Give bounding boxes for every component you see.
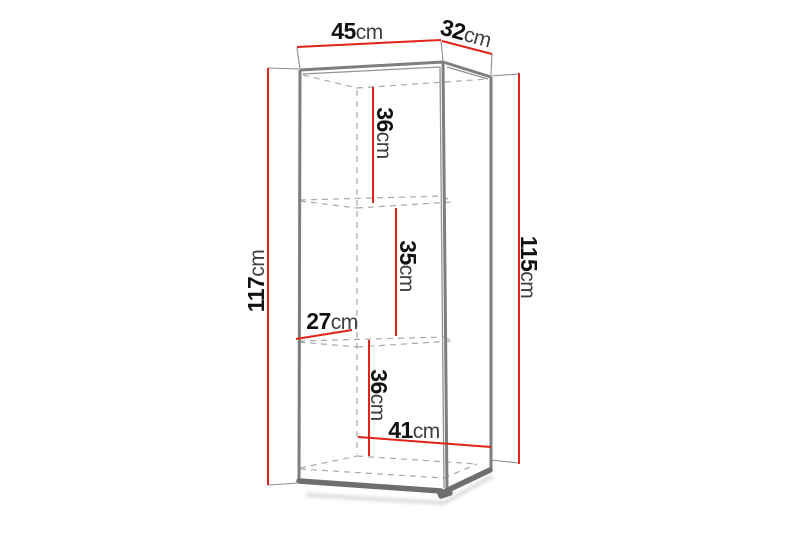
cabinet-dimension-diagram: 45cm 32cm 117cm 115cm 36cm 35cm 27cm 36c…: [0, 0, 800, 533]
front-left-edge: [299, 70, 300, 481]
dim-label-top-width: 45cm: [331, 18, 383, 44]
dim-label-upper-compartment: 36cm: [372, 107, 398, 159]
dim-label-shelf-depth: 27cm: [306, 308, 358, 334]
dim-label-interior-width: 41cm: [388, 417, 440, 443]
dim-label-middle-compartment: 35cm: [395, 240, 421, 292]
dim-label-left-height: 117cm: [243, 250, 269, 313]
dim-label-lower-compartment: 36cm: [366, 369, 392, 421]
dim-label-right-height: 115cm: [516, 236, 542, 299]
